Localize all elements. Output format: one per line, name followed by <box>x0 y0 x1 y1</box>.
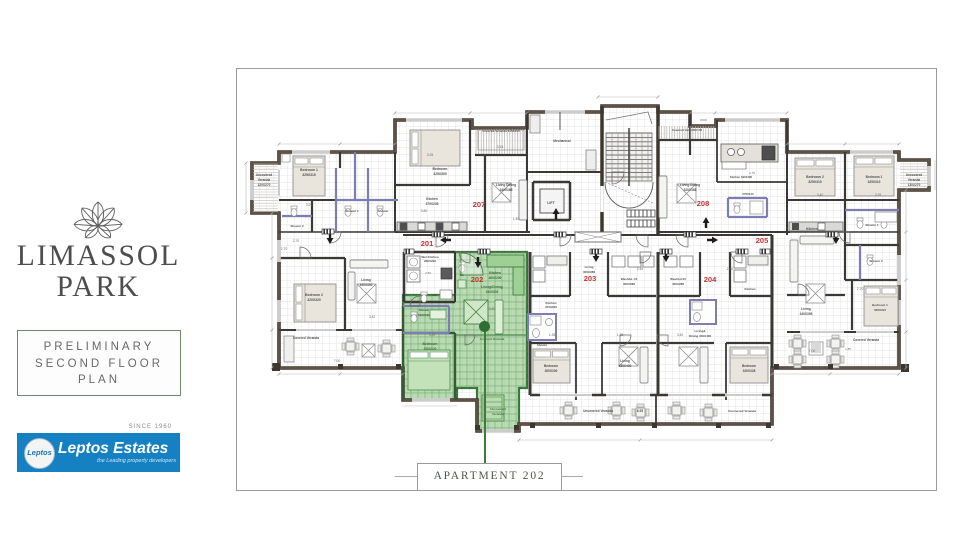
svg-text:3.42: 3.42 <box>369 315 376 319</box>
svg-text:2.70: 2.70 <box>281 247 288 251</box>
svg-text:Uncovered Veranda: Uncovered Veranda <box>583 409 613 413</box>
svg-text:320X320: 320X320 <box>307 298 321 302</box>
svg-text:2.70: 2.70 <box>293 239 300 243</box>
svg-text:340X500: 340X500 <box>486 290 499 294</box>
svg-text:Shower 2: Shower 2 <box>869 259 883 263</box>
svg-text:Shower: Shower <box>537 343 548 347</box>
svg-text:Bedroom 2: Bedroom 2 <box>806 175 824 179</box>
svg-text:201: 201 <box>421 239 434 248</box>
svg-text:3.25: 3.25 <box>306 203 313 207</box>
svg-text:207: 207 <box>473 200 486 209</box>
svg-text:325X310: 325X310 <box>302 173 316 177</box>
svg-text:340X395: 340X395 <box>360 283 373 287</box>
svg-text:Living/Dining: Living/Dining <box>481 285 502 289</box>
svg-text:320X320: 320X320 <box>424 347 437 351</box>
svg-text:Shower 1: Shower 1 <box>345 209 359 213</box>
svg-text:300X300: 300X300 <box>545 369 558 373</box>
svg-text:Covered Ver 345X150: Covered Ver 345X150 <box>672 128 703 132</box>
svg-text:Shower 1: Shower 1 <box>865 223 879 227</box>
svg-text:Covered Veranda: Covered Veranda <box>853 338 879 342</box>
svg-text:2.70: 2.70 <box>857 287 864 291</box>
svg-text:Bedroom 1: Bedroom 1 <box>866 175 883 179</box>
svg-text:340X368: 340X368 <box>500 188 513 192</box>
svg-text:Dining 340X430: Dining 340X430 <box>689 334 712 338</box>
svg-text:Washbd .10: Washbd .10 <box>621 277 638 281</box>
svg-text:Kitchen 390X180: Kitchen 390X180 <box>730 175 753 179</box>
svg-text:325X310: 325X310 <box>808 180 822 184</box>
svg-text:1.40: 1.40 <box>513 217 520 221</box>
svg-text:Kitchen: Kitchen <box>426 197 438 201</box>
svg-text:130X270: 130X270 <box>908 183 921 187</box>
svg-text:400X200: 400X200 <box>489 276 502 280</box>
svg-text:Living Dining: Living Dining <box>680 183 700 187</box>
svg-text:400X288: 400X288 <box>672 282 684 286</box>
svg-text:2.50: 2.50 <box>727 267 734 271</box>
svg-text:203: 203 <box>584 274 597 283</box>
svg-text:Living: Living <box>801 307 810 311</box>
svg-text:3.15: 3.15 <box>497 145 504 149</box>
svg-text:3.25: 3.25 <box>429 333 436 337</box>
svg-text:6.35: 6.35 <box>637 409 643 413</box>
svg-text:Covered Veranda 315X150: Covered Veranda 315X150 <box>482 129 520 133</box>
svg-text:Living Dining: Living Dining <box>496 183 516 187</box>
svg-text:325X310: 325X310 <box>868 180 881 184</box>
svg-text:Bedroom: Bedroom <box>544 364 558 368</box>
svg-text:Living: Living <box>361 278 370 282</box>
svg-text:3.40: 3.40 <box>677 333 684 337</box>
svg-text:Mechanical: Mechanical <box>553 139 570 143</box>
svg-text:340X395: 340X395 <box>800 312 813 316</box>
svg-text:370X235: 370X235 <box>426 202 439 206</box>
svg-text:1.35: 1.35 <box>617 333 624 337</box>
svg-text:Kitchen: Kitchen <box>744 287 755 291</box>
svg-text:Veranda: Veranda <box>492 412 504 416</box>
svg-text:Living: Living <box>585 265 594 269</box>
svg-text:Uncovered: Uncovered <box>490 407 506 411</box>
svg-text:1.35: 1.35 <box>549 333 556 337</box>
svg-text:2.50: 2.50 <box>425 271 431 275</box>
svg-text:120X270: 120X270 <box>258 183 271 187</box>
svg-text:300X288: 300X288 <box>623 282 635 286</box>
svg-text:Bedroom: Bedroom <box>742 364 756 368</box>
svg-text:205: 205 <box>756 236 769 245</box>
svg-text:7.00: 7.00 <box>334 359 341 363</box>
svg-text:3.25: 3.25 <box>875 193 882 197</box>
svg-text:320X368: 320X368 <box>684 188 697 192</box>
svg-text:Veranda: Veranda <box>258 178 271 182</box>
svg-text:208: 208 <box>697 199 710 208</box>
svg-text:3.40: 3.40 <box>817 193 824 197</box>
svg-text:Bedroom 2: Bedroom 2 <box>305 293 323 297</box>
svg-text:1.85: 1.85 <box>845 347 851 351</box>
svg-text:Wc: Wc <box>460 273 465 277</box>
svg-text:335X430: 335X430 <box>619 364 632 368</box>
svg-text:Covered Veranda: Covered Veranda <box>293 336 319 340</box>
svg-text:3.80: 3.80 <box>421 209 428 213</box>
svg-text:370X200: 370X200 <box>545 305 557 309</box>
svg-text:Kitchen: Kitchen <box>806 227 818 231</box>
svg-text:Uncovered Veranda: Uncovered Veranda <box>728 409 756 413</box>
svg-text:Washbd 03: Washbd 03 <box>670 277 686 281</box>
svg-text:Uncovered: Uncovered <box>906 173 923 177</box>
svg-text:202: 202 <box>471 275 484 284</box>
svg-text:Bedroom 1: Bedroom 1 <box>872 303 888 307</box>
svg-text:Shower: Shower <box>378 209 390 213</box>
svg-text:2.45: 2.45 <box>637 267 644 271</box>
svg-text:325X315: 325X315 <box>874 308 886 312</box>
svg-text:LIFT: LIFT <box>547 201 555 205</box>
svg-text:DW: DW <box>432 293 437 297</box>
svg-text:7.00: 7.00 <box>809 349 816 353</box>
svg-text:Uncovered: Uncovered <box>256 173 273 177</box>
svg-text:3.40: 3.40 <box>489 307 496 311</box>
svg-text:Living&: Living& <box>695 329 707 333</box>
svg-text:Living: Living <box>620 359 629 363</box>
svg-text:325X300: 325X300 <box>433 172 447 176</box>
svg-text:Bedroom 1: Bedroom 1 <box>300 168 318 172</box>
svg-text:Bedroom: Bedroom <box>423 342 438 346</box>
svg-text:260X290: 260X290 <box>424 259 436 263</box>
svg-text:320X328: 320X328 <box>743 369 756 373</box>
svg-text:204: 204 <box>704 275 717 284</box>
svg-text:Veranda: Veranda <box>908 178 921 182</box>
svg-text:Bedroom: Bedroom <box>433 167 448 171</box>
svg-text:Kitchen: Kitchen <box>489 271 501 275</box>
svg-text:160X150: 160X150 <box>418 313 430 317</box>
svg-text:Shower: Shower <box>419 308 431 312</box>
svg-text:Shower 2: Shower 2 <box>290 224 304 228</box>
svg-text:270X140: 270X140 <box>742 192 754 196</box>
svg-text:3.25: 3.25 <box>427 153 434 157</box>
